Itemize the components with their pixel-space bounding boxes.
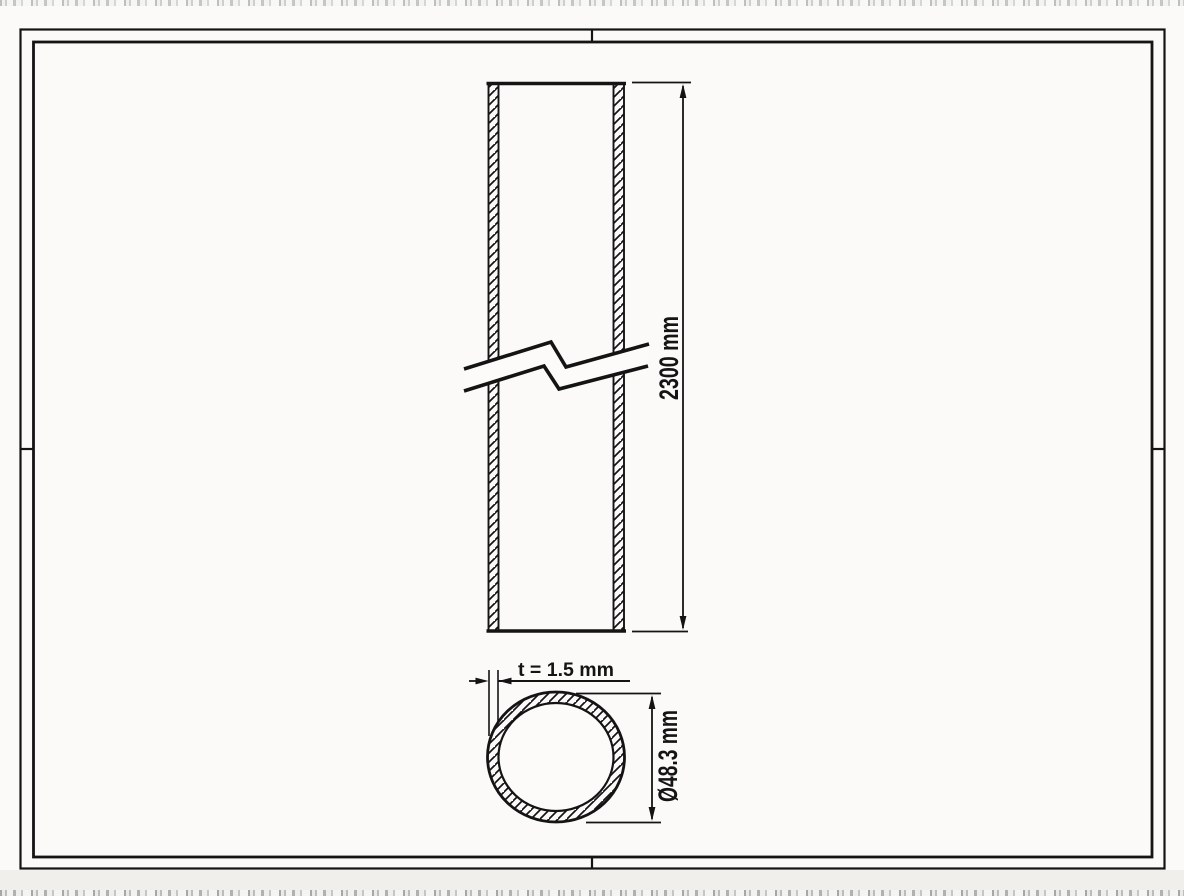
technical-drawing-canvas: 2300 mm Ø48.3 mm t = 1.5 mm xyxy=(0,0,1184,896)
drawing-sheet: 2300 mm Ø48.3 mm t = 1.5 mm xyxy=(0,0,1184,896)
length-arrow-up xyxy=(680,84,687,98)
cross-section-inner-circle xyxy=(499,703,614,811)
length-arrow-down xyxy=(680,616,687,630)
tube-cross-section-view xyxy=(488,692,625,822)
scan-artifact-top xyxy=(0,0,1184,6)
diameter-arrow-up xyxy=(649,695,656,709)
thickness-arrow-right-pointing xyxy=(476,678,489,685)
length-dimension-label: 2300 mm xyxy=(654,316,684,400)
scan-artifact-bottom xyxy=(0,890,1184,896)
diameter-arrow-down xyxy=(649,807,656,821)
thickness-dimension-label: t = 1.5 mm xyxy=(518,660,614,681)
diameter-dimension-label: Ø48.3 mm xyxy=(653,710,683,802)
